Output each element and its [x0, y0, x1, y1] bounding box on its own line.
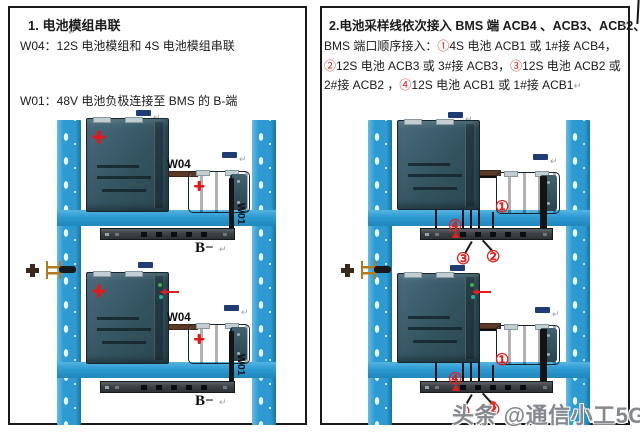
module-vent [102, 189, 146, 192]
bms-unit [100, 228, 235, 240]
indicator-led-teal [159, 295, 163, 299]
left-panel-line-w04: W04：12S 电池模组和 4S 电池模组串联 [20, 37, 235, 54]
module-handle [436, 119, 454, 125]
connector-block [224, 305, 239, 311]
bms-unit [420, 381, 553, 393]
indicator-led-green [470, 283, 474, 287]
module-vent [413, 187, 457, 190]
circled-number: ① [437, 39, 449, 53]
instruction-text: 12S 电池 ACB1 或 1#接 ACB1 [411, 78, 573, 92]
instruction-text: 12S 电池 ACB3 或 3#接 ACB3， [336, 59, 510, 73]
bms-unit [100, 381, 235, 393]
cable-label-w01: W01 [235, 354, 247, 376]
callout-4-arrow-icon [452, 231, 460, 238]
module-handle [504, 324, 518, 330]
positive-terminal-label: + [92, 282, 106, 301]
module-handle [404, 119, 422, 125]
module-side-strip [465, 124, 474, 206]
paragraph-mark: ↵ [550, 157, 558, 166]
sampling-wire [492, 212, 494, 228]
module-handle [125, 271, 143, 277]
watermark: 头条 @通信小工5G [452, 398, 640, 430]
paragraph-mark: ↵ [241, 308, 249, 317]
callout-1: ① [495, 200, 509, 216]
connector-block [138, 262, 153, 268]
cable-w01 [229, 178, 234, 234]
instruction-text: 4S 电池 ACB1 或 1#接 ACB4， [449, 39, 616, 53]
module-handle [93, 117, 111, 123]
module-vent [97, 317, 139, 320]
module-vent [102, 341, 146, 344]
battery-module-12s: + [86, 272, 169, 364]
cable-label-w01: W01 [235, 203, 247, 225]
callout-2: ② [486, 250, 500, 266]
battery-negative-bar-icon [374, 266, 391, 273]
module-handle [436, 272, 454, 278]
circled-number: ② [324, 59, 336, 73]
paragraph-mark: ↵ [621, 20, 629, 29]
left-panel-line-w01: W01：48V 电池负极连接至 BMS 的 B-端 [20, 92, 237, 109]
module-vent [408, 316, 450, 319]
callout-3: ③ [456, 252, 470, 268]
module-vent [413, 340, 457, 343]
cable-label-w04: W04 [167, 312, 191, 324]
paragraph-mark: ↵ [573, 81, 581, 92]
paragraph-mark: ↵ [239, 155, 247, 164]
bms-unit [420, 228, 553, 240]
right-panel-title: 2.电池采样线依次接入 BMS 端 ACB4 、ACB3、ACB2、ACB1 [329, 15, 640, 34]
cable-w01 [229, 331, 234, 387]
callout-1: ① [495, 353, 509, 369]
module-vent [408, 174, 462, 177]
module-vent [97, 176, 151, 179]
right-panel-instructions: BMS 端口顺序接入：①4S 电池 ACB1 或 1#接 ACB4，②12S 电… [324, 37, 627, 97]
indicator-led-teal [471, 295, 475, 299]
battery-negative-bar-icon [59, 266, 76, 273]
module-handle [93, 271, 111, 277]
paragraph-mark: ↵ [552, 310, 560, 319]
rack-rail-right [566, 120, 590, 425]
indicator-led-green [158, 283, 162, 287]
battery-module-12s: + [86, 118, 169, 212]
rack-rail-right [252, 120, 276, 425]
module-vent [97, 328, 151, 331]
module-handle [504, 171, 518, 177]
connector-block [533, 154, 548, 160]
battery-module-12s [397, 273, 480, 363]
module-side-strip [154, 122, 163, 208]
bms-b-minus-label: B− [195, 393, 214, 410]
positive-terminal-label: + [92, 128, 106, 147]
paragraph-mark: ↵ [219, 398, 227, 407]
module-vent [97, 165, 139, 168]
cable-b-minus [540, 329, 547, 387]
battery-positive-symbol-icon [26, 264, 39, 277]
module-vent [408, 327, 462, 330]
battery-positive-symbol-icon [341, 264, 354, 277]
instruction-text: BMS 端口顺序接入： [324, 39, 437, 53]
positive-terminal-label: + [194, 332, 205, 346]
callout-4-arrow-icon [452, 384, 460, 391]
sampling-wire [492, 365, 494, 381]
cable-b-minus [540, 176, 547, 234]
connector-block [448, 112, 463, 118]
cable-label-w04: W04 [167, 159, 191, 171]
paragraph-mark: ↵ [219, 245, 227, 254]
module-handle [125, 117, 143, 123]
circled-number: ③ [510, 59, 522, 73]
circled-number: ④ [399, 78, 411, 92]
battery-module-12s [397, 120, 480, 210]
connector-block [535, 307, 550, 313]
module-handle [404, 272, 422, 278]
connector-block [136, 110, 151, 116]
positive-terminal-label: + [194, 179, 205, 193]
pointer-arrow-icon [166, 291, 179, 293]
connector-block [222, 152, 237, 158]
left-panel-title: 1. 电池模组串联 [28, 15, 120, 34]
pointer-arrow-icon [478, 291, 491, 293]
module-vent [408, 163, 450, 166]
bms-b-minus-label: B− [195, 240, 214, 257]
